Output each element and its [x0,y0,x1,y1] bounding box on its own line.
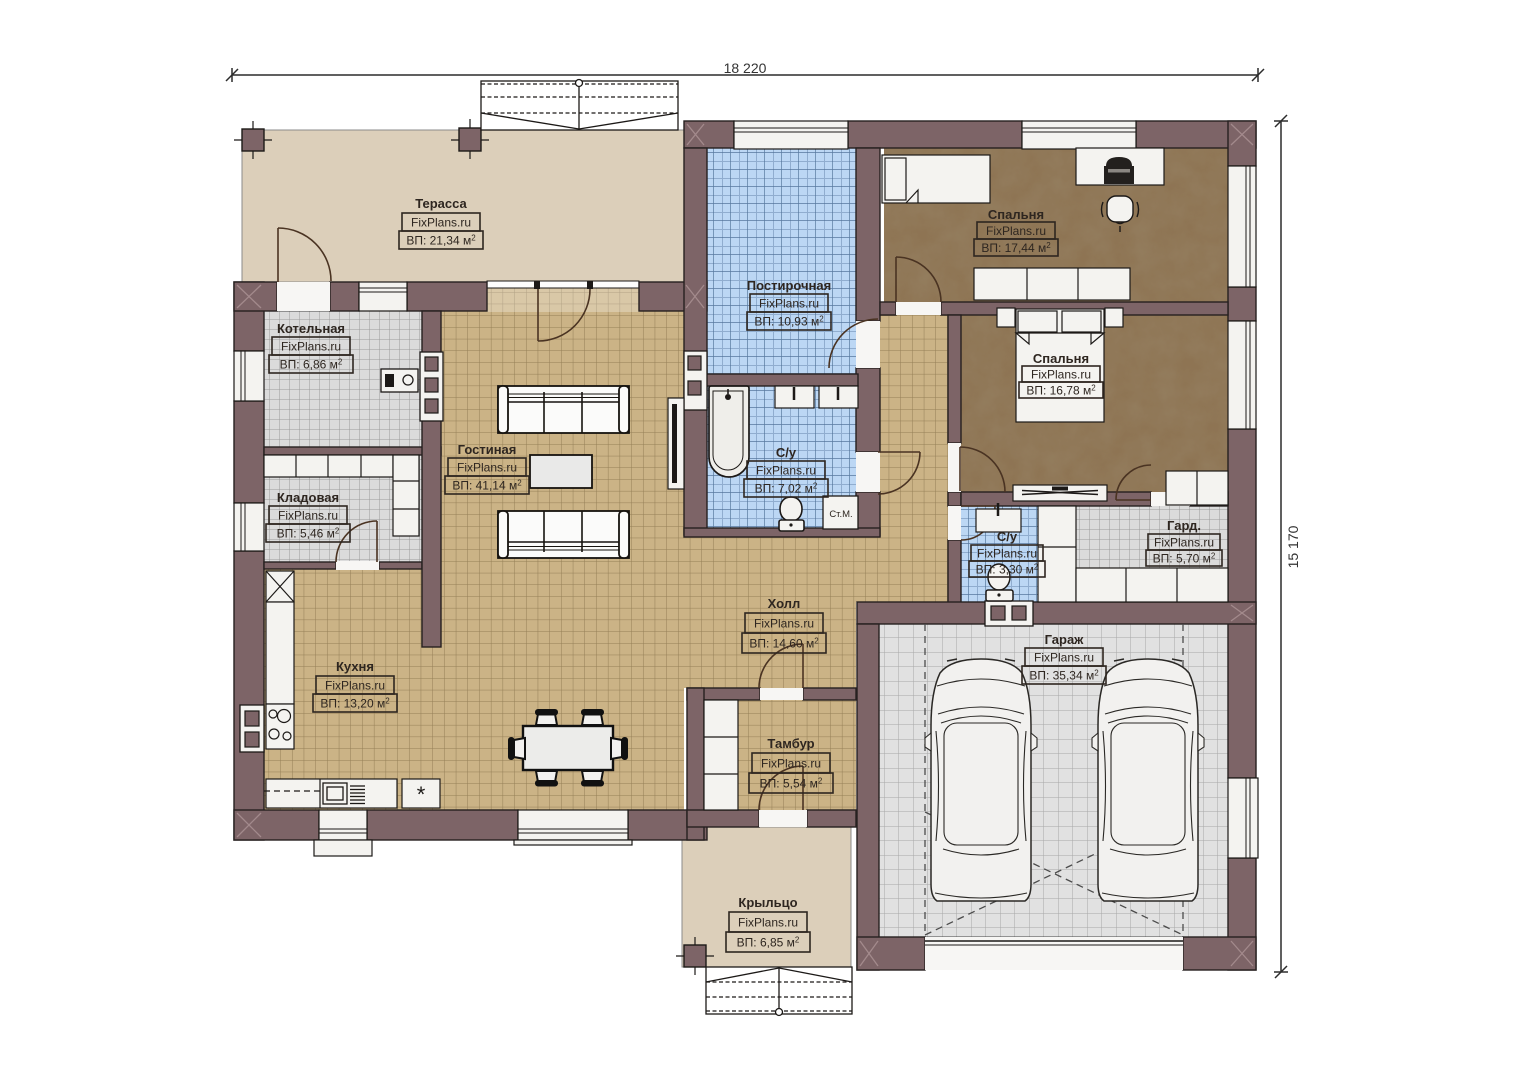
svg-text:Терасса: Терасса [415,196,467,211]
svg-text:ВП: 3,30 м2: ВП: 3,30 м2 [976,563,1039,577]
svg-text:FixPlans.ru: FixPlans.ru [977,547,1037,561]
svg-text:FixPlans.ru: FixPlans.ru [325,679,385,693]
svg-text:FixPlans.ru: FixPlans.ru [1154,536,1214,550]
svg-text:Холл: Холл [768,596,801,611]
svg-text:FixPlans.ru: FixPlans.ru [281,340,341,354]
svg-text:ВП: 41,14 м2: ВП: 41,14 м2 [452,479,522,493]
svg-text:ВП: 14,60 м2: ВП: 14,60 м2 [749,637,819,651]
svg-text:ВП: 35,34 м2: ВП: 35,34 м2 [1029,669,1099,683]
svg-text:Кухня: Кухня [336,659,374,674]
svg-text:ВП: 5,46 м2: ВП: 5,46 м2 [277,527,340,541]
svg-text:FixPlans.ru: FixPlans.ru [738,916,798,930]
svg-text:ВП: 13,20 м2: ВП: 13,20 м2 [320,697,390,711]
svg-text:ВП: 16,78 м2: ВП: 16,78 м2 [1026,384,1096,398]
svg-text:FixPlans.ru: FixPlans.ru [278,509,338,523]
svg-text:С/у: С/у [997,529,1018,544]
svg-text:FixPlans.ru: FixPlans.ru [756,464,816,478]
svg-text:ВП: 5,54 м2: ВП: 5,54 м2 [760,777,823,791]
svg-text:ВП: 6,86 м2: ВП: 6,86 м2 [280,358,343,372]
svg-text:ВП: 7,02 м2: ВП: 7,02 м2 [755,482,818,496]
svg-text:*: * [417,782,426,807]
svg-text:ВП: 21,34 м2: ВП: 21,34 м2 [406,234,476,248]
svg-text:Тамбур: Тамбур [767,736,814,751]
svg-text:Спальня: Спальня [988,207,1044,222]
svg-text:Гард.: Гард. [1167,518,1201,533]
svg-text:Гостиная: Гостиная [458,442,517,457]
svg-text:FixPlans.ru: FixPlans.ru [457,461,517,475]
svg-text:FixPlans.ru: FixPlans.ru [986,224,1046,238]
svg-text:ВП: 6,85 м2: ВП: 6,85 м2 [737,936,800,950]
svg-text:ВП: 5,70 м2: ВП: 5,70 м2 [1153,552,1216,566]
svg-text:FixPlans.ru: FixPlans.ru [411,216,471,230]
svg-text:ВП: 17,44 м2: ВП: 17,44 м2 [981,241,1051,255]
svg-text:Спальня: Спальня [1033,351,1089,366]
svg-text:ВП: 10,93 м2: ВП: 10,93 м2 [754,315,824,329]
svg-text:FixPlans.ru: FixPlans.ru [761,757,821,771]
svg-text:Ст.М.: Ст.М. [829,509,852,520]
svg-text:FixPlans.ru: FixPlans.ru [754,617,814,631]
svg-text:С/у: С/у [776,445,797,460]
svg-text:Крыльцо: Крыльцо [738,895,797,910]
svg-text:Постирочная: Постирочная [747,278,831,293]
svg-text:Котельная: Котельная [277,321,345,336]
svg-text:Гараж: Гараж [1045,632,1085,647]
svg-text:18 220: 18 220 [724,60,767,76]
svg-text:FixPlans.ru: FixPlans.ru [759,297,819,311]
svg-text:FixPlans.ru: FixPlans.ru [1031,368,1091,382]
svg-text:15 170: 15 170 [1285,525,1301,568]
svg-text:FixPlans.ru: FixPlans.ru [1034,651,1094,665]
svg-text:Кладовая: Кладовая [277,490,339,505]
